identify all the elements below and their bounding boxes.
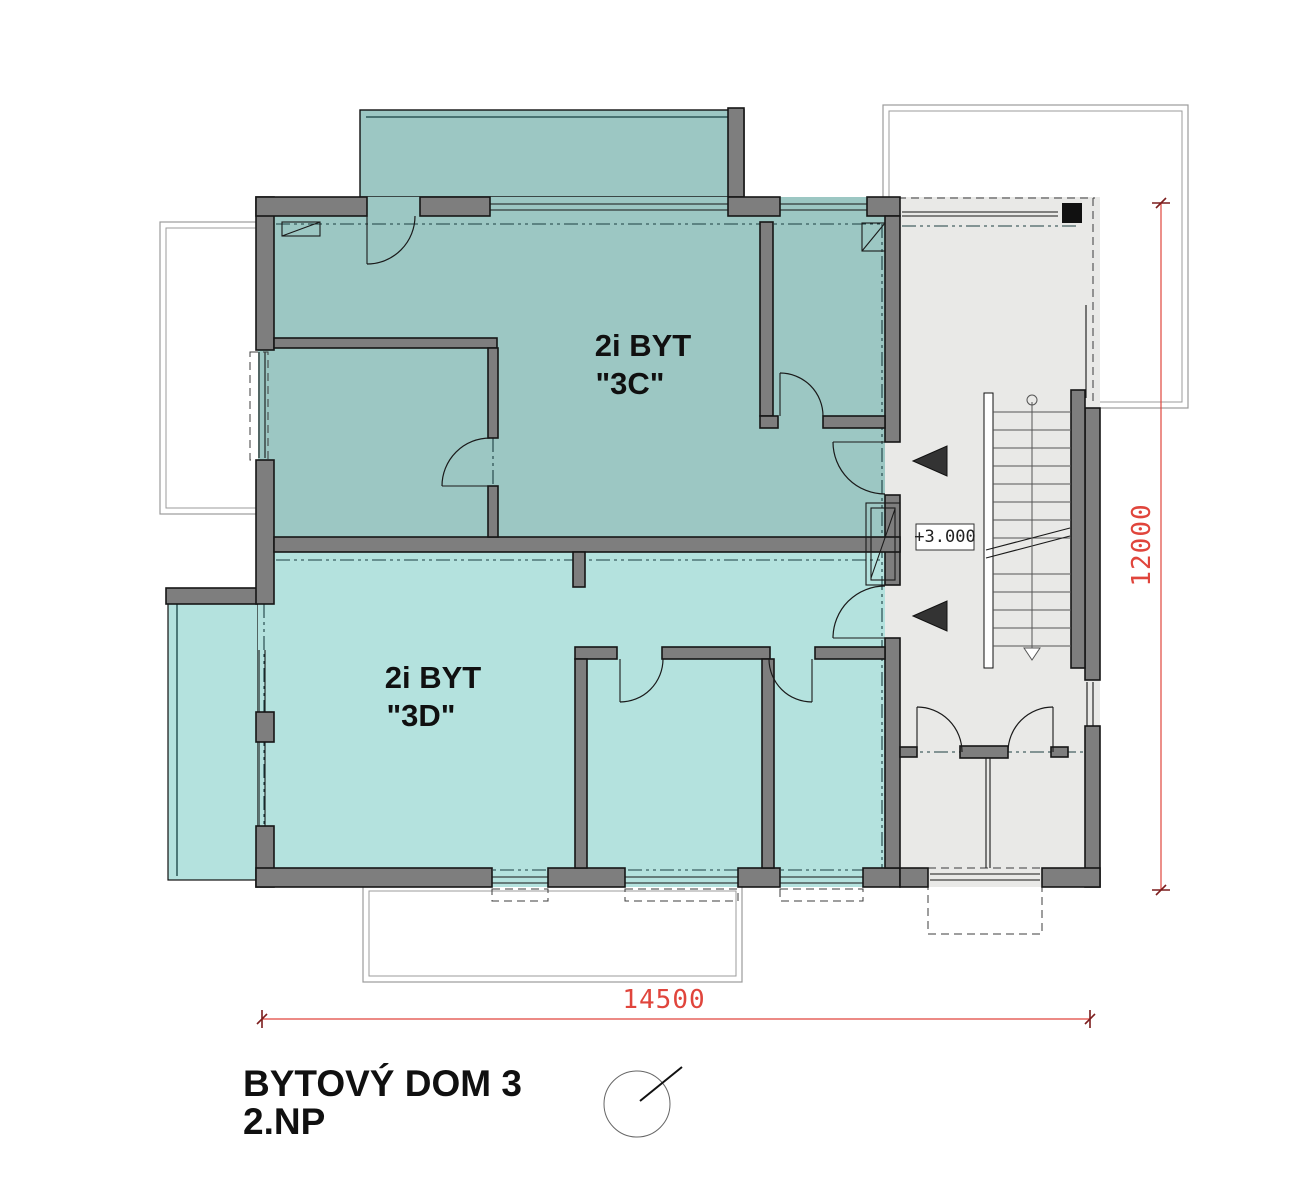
apartment-3c-area — [258, 197, 900, 552]
north-symbol-icon — [604, 1067, 682, 1137]
apartment-3c-name-line1: 2i BYT — [595, 328, 692, 363]
stair-stringer — [984, 393, 993, 668]
balcony-bottom-left — [166, 588, 258, 880]
dimension-bottom: 14500 — [257, 985, 1095, 1028]
floor-plan-canvas: +3.000 14500 12000 2i BYT "3C" 2i BYT "3… — [0, 0, 1300, 1190]
dimension-bottom-value: 14500 — [622, 985, 705, 1015]
terrace-bottom — [363, 885, 742, 982]
dimension-right-value: 12000 — [1127, 503, 1157, 586]
floor-plan-drawing: +3.000 14500 12000 2i BYT "3C" 2i BYT "3… — [0, 0, 1300, 1190]
title-line2: 2.NP — [243, 1101, 325, 1142]
apartment-3d-name-line1: 2i BYT — [385, 660, 482, 695]
elevation-label: +3.000 — [914, 527, 975, 547]
elevation-marker: +3.000 — [914, 524, 975, 550]
apartment-3d-name-line2: "3D" — [386, 698, 455, 733]
column — [1062, 203, 1082, 223]
apartment-3c-name-line2: "3C" — [595, 366, 664, 401]
drawing-title: BYTOVÝ DOM 3 2.NP — [243, 1063, 522, 1142]
title-line1: BYTOVÝ DOM 3 — [243, 1063, 522, 1104]
balcony-top — [360, 108, 744, 197]
